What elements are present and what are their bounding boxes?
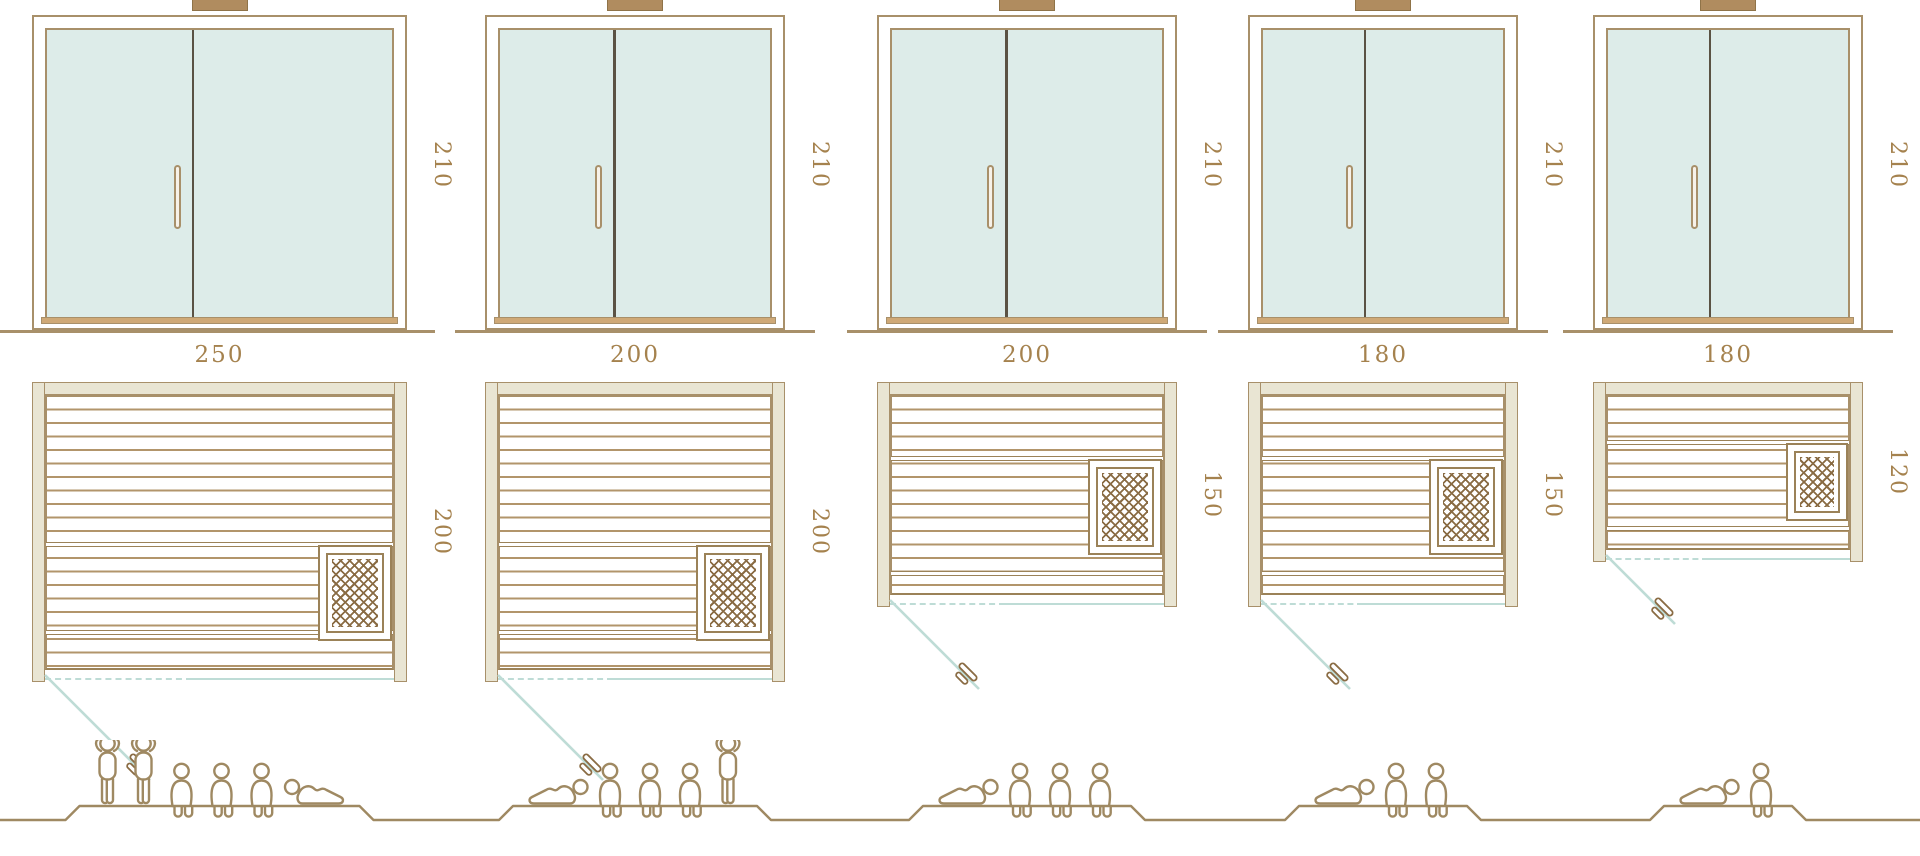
- door-sill: [1602, 317, 1854, 324]
- door-handle-icon: [1346, 165, 1353, 229]
- door-divider: [192, 30, 195, 317]
- plan-depth-label: 150: [1539, 460, 1565, 530]
- heater-hatch: [710, 559, 756, 627]
- door-elevation: [1593, 15, 1863, 330]
- plan-wall-top: [32, 382, 407, 395]
- heater-icon: [1088, 459, 1162, 555]
- floor-plan: [1248, 382, 1518, 607]
- heater-hatch: [1102, 473, 1148, 541]
- ground-line: [455, 330, 815, 333]
- door-sill: [494, 317, 776, 324]
- capacity-platform: [0, 806, 1920, 820]
- door-glass: [890, 28, 1164, 319]
- door-divider: [613, 30, 616, 317]
- heater-icon: [1786, 443, 1848, 521]
- vent-cap-icon: [1700, 0, 1756, 11]
- floor-plan: [877, 382, 1177, 607]
- door-height-label: 210: [1539, 130, 1565, 200]
- door-swing-icon: [887, 597, 1009, 719]
- bench-edge-line: [891, 571, 1163, 576]
- sauna-unit-sauna-180x150: 210 180 150: [1248, 0, 1592, 740]
- bench-edge-line: [1607, 526, 1849, 531]
- plan-wall-top: [1248, 382, 1518, 395]
- vent-cap-icon: [192, 0, 248, 11]
- door-handle-icon: [595, 165, 602, 229]
- door-height-label: 210: [428, 130, 454, 200]
- plan-wall-right: [772, 382, 785, 682]
- heater-grid: [1437, 467, 1495, 547]
- heater-grid: [704, 553, 762, 633]
- door-handle-icon: [987, 165, 994, 229]
- glass-wall-solid: [1005, 603, 1164, 605]
- door-height-label: 210: [1884, 130, 1910, 200]
- glass-wall-solid: [1708, 558, 1850, 560]
- door-height-label: 210: [1198, 130, 1224, 200]
- door-glass: [1606, 28, 1850, 319]
- vent-cap-icon: [999, 0, 1055, 11]
- heater-hatch: [1800, 457, 1834, 507]
- sauna-size-diagram: 210 250 200: [0, 0, 1920, 856]
- door-swing-icon: [1258, 597, 1380, 719]
- plan-wall-left: [485, 382, 498, 682]
- door-elevation: [1248, 15, 1518, 330]
- door-handle-icon: [1691, 165, 1698, 229]
- bench-edge-line: [1262, 571, 1504, 576]
- plan-width-label: 200: [877, 341, 1177, 369]
- floor-plan: [32, 382, 407, 682]
- plan-width-label: 250: [32, 341, 407, 369]
- plan-wall-top: [877, 382, 1177, 395]
- floor-plan: [485, 382, 785, 682]
- glass-wall-solid: [613, 678, 772, 680]
- door-swing-icon: [1603, 552, 1705, 654]
- heater-grid: [1794, 451, 1840, 513]
- plan-depth-label: 150: [1198, 460, 1224, 530]
- door-glass: [45, 28, 394, 319]
- glass-wall-solid: [192, 678, 394, 680]
- heater-hatch: [332, 559, 378, 627]
- ground-line: [1218, 330, 1548, 333]
- vent-cap-icon: [1355, 0, 1411, 11]
- plan-depth-label: 200: [428, 497, 454, 567]
- door-elevation: [877, 15, 1177, 330]
- vent-cap-icon: [607, 0, 663, 11]
- sauna-unit-sauna-250x200: 210 250 200: [32, 0, 481, 740]
- plan-width-label: 200: [485, 341, 785, 369]
- door-elevation: [32, 15, 407, 330]
- sauna-unit-sauna-200x200: 210 200 200: [485, 0, 859, 740]
- ground-line: [1563, 330, 1893, 333]
- plan-wall-left: [1248, 382, 1261, 607]
- heater-hatch: [1443, 473, 1489, 541]
- door-elevation: [485, 15, 785, 330]
- plan-depth-label: 120: [1884, 437, 1910, 507]
- ground-line: [847, 330, 1207, 333]
- glass-wall-solid: [1363, 603, 1505, 605]
- plan-wall-right: [1505, 382, 1518, 607]
- door-glass: [1261, 28, 1505, 319]
- heater-icon: [696, 545, 770, 641]
- ground-line: [0, 330, 435, 333]
- door-divider: [1709, 30, 1712, 317]
- floor-plan: [1593, 382, 1863, 562]
- plan-wall-top: [1593, 382, 1863, 395]
- plan-wall-right: [1850, 382, 1863, 562]
- door-divider: [1005, 30, 1008, 317]
- plan-depth-label: 200: [806, 497, 832, 567]
- sauna-unit-sauna-200x150: 210 200 150: [877, 0, 1251, 740]
- capacity-people-strip: [0, 740, 1920, 856]
- plan-wall-right: [1164, 382, 1177, 607]
- plan-wall-left: [1593, 382, 1606, 562]
- heater-grid: [1096, 467, 1154, 547]
- door-divider: [1364, 30, 1367, 317]
- door-height-label: 210: [806, 130, 832, 200]
- plan-wall-top: [485, 382, 785, 395]
- plan-width-label: 180: [1593, 341, 1863, 369]
- door-glass: [498, 28, 772, 319]
- heater-grid: [326, 553, 384, 633]
- plan-width-label: 180: [1248, 341, 1518, 369]
- plan-wall-left: [877, 382, 890, 607]
- door-sill: [886, 317, 1168, 324]
- plan-wall-left: [32, 382, 45, 682]
- door-sill: [1257, 317, 1509, 324]
- door-handle-icon: [174, 165, 181, 229]
- heater-icon: [318, 545, 392, 641]
- door-sill: [41, 317, 398, 324]
- sauna-unit-sauna-180x120: 210 180 120: [1593, 0, 1920, 740]
- heater-icon: [1429, 459, 1503, 555]
- plan-wall-right: [394, 382, 407, 682]
